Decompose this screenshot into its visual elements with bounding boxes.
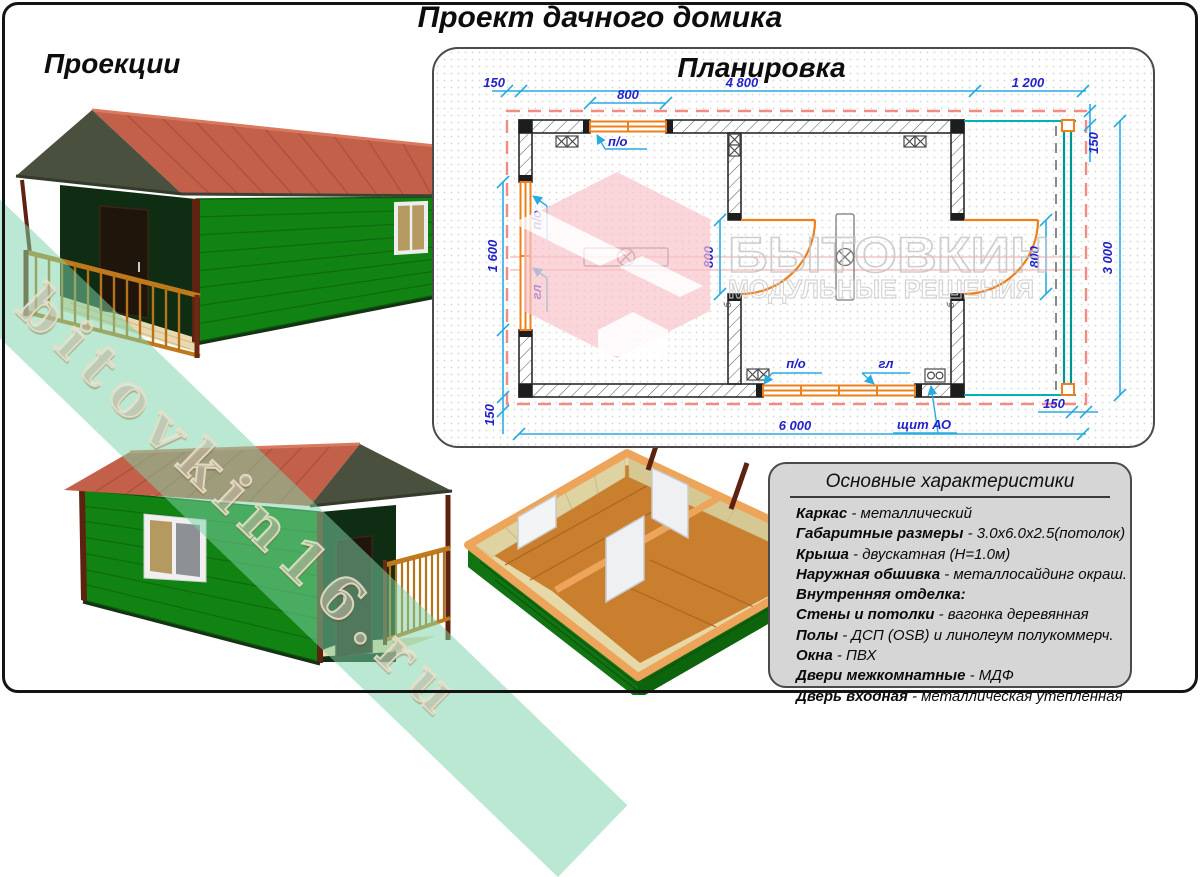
dim-bottom-left-offset: 150 — [482, 403, 497, 425]
dim-right-total: 3 000 — [1100, 241, 1115, 274]
characteristic-item: Наружная обшивка - металлосайдинг окраш. — [770, 565, 1130, 585]
characteristics-heading: Основные характеристики — [770, 471, 1130, 493]
label-window-bottom-right: гл — [878, 356, 893, 371]
characteristic-item: Окна - ПВХ — [770, 646, 1130, 666]
label-window-top: п/о — [608, 134, 628, 149]
heading-underline — [790, 496, 1110, 498]
label-window-bottom-left: п/о — [786, 356, 806, 371]
characteristic-item: Дверь входная - металлическая утепленная — [770, 687, 1130, 707]
dim-top-veranda: 1 200 — [1012, 75, 1045, 90]
house-view-1 — [16, 110, 460, 358]
entrance-door — [336, 536, 372, 658]
characteristics-list: Каркас - металлическийГабаритные размеры… — [770, 504, 1130, 707]
plan-panel: Планировка — [432, 47, 1155, 448]
dim-left-window: 1 600 — [485, 239, 500, 272]
characteristics-panel: Основные характеристики Каркас - металли… — [768, 462, 1132, 688]
page-title: Проект дачного домика — [0, 1, 1200, 35]
floor-plan-drawing: 150 800 4 800 1 200 150 1 600 150 800 80… — [434, 49, 1153, 446]
characteristic-item: Полы - ДСП (OSB) и линолеум полукоммерч. — [770, 626, 1130, 646]
dim-bottom-total: 6 000 — [779, 418, 812, 433]
characteristic-item: Внутренняя отделка: — [770, 585, 1130, 605]
characteristic-item: Двери межкомнатные - МДФ — [770, 666, 1130, 686]
dim-bottom-right-offset: 150 — [1043, 396, 1065, 411]
characteristic-item: Крыша - двускатная (Н=1.0м) — [770, 545, 1130, 565]
characteristic-item: Стены и потолки - вагонка деревянная — [770, 605, 1130, 625]
dim-top-offset-left: 150 — [483, 75, 505, 90]
characteristic-item: Габаритные размеры - 3.0х6.0х2.5(потолок… — [770, 524, 1130, 544]
projections-heading: Проекции — [44, 48, 180, 80]
dim-top-right-offset: 150 — [1086, 131, 1101, 153]
characteristic-item: Каркас - металлический — [770, 504, 1130, 524]
house-view-2 — [64, 444, 452, 664]
label-electrical-panel: щит АО — [897, 417, 951, 432]
watermark-brand-tagline: МОДУЛЬНЫЕ РЕШЕНИЯ — [728, 274, 1034, 304]
dim-top-main: 4 800 — [725, 75, 759, 90]
plan-watermark: БЫТОВКИН МОДУЛЬНЫЕ РЕШЕНИЯ — [513, 172, 1050, 358]
dim-top-window: 800 — [617, 87, 639, 102]
